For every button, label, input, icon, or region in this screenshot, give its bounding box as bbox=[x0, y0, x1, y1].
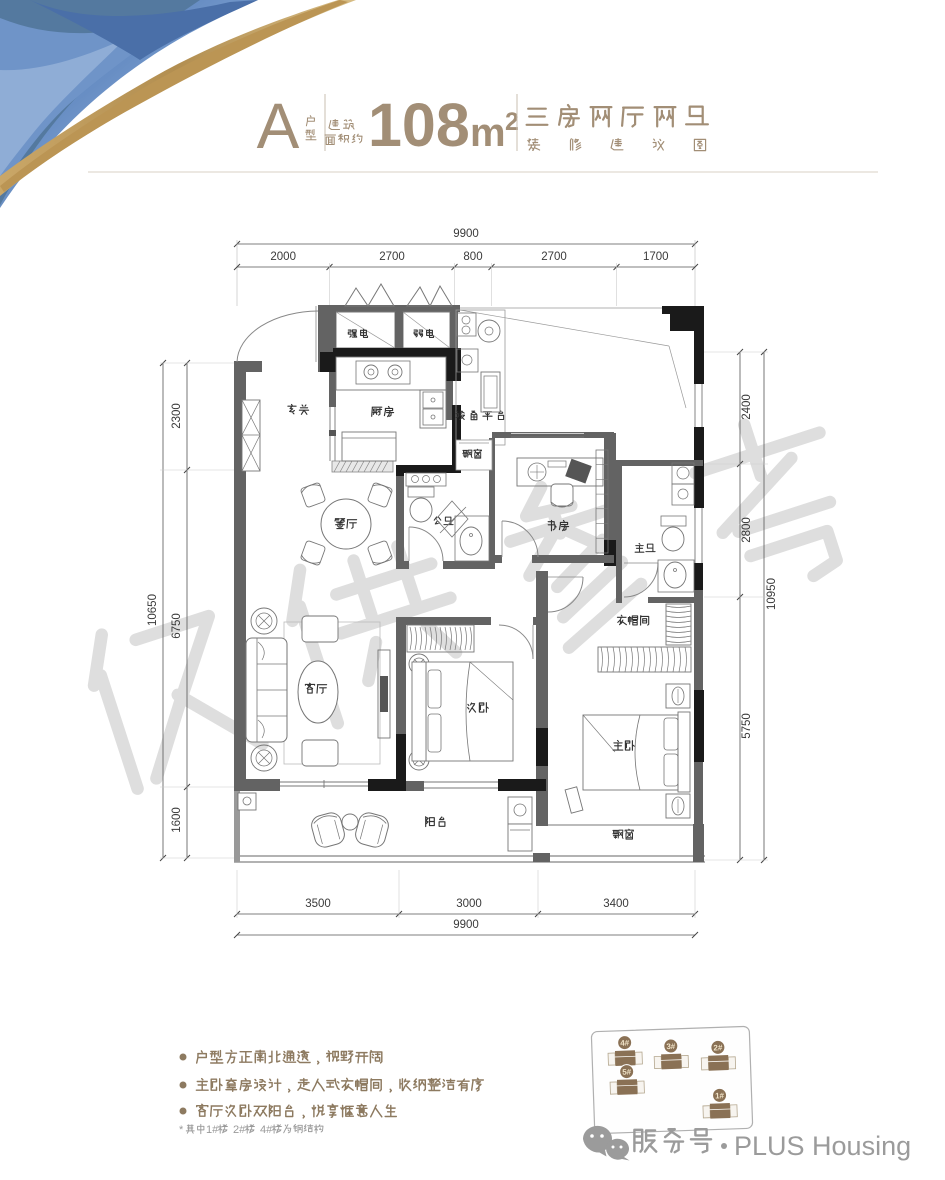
svg-text:1600: 1600 bbox=[171, 807, 183, 833]
svg-text:4#: 4# bbox=[620, 1038, 630, 1047]
svg-text:2700: 2700 bbox=[379, 251, 405, 263]
svg-text:1#: 1# bbox=[715, 1091, 725, 1100]
svg-text:4#: 4# bbox=[260, 1124, 273, 1136]
svg-text:3400: 3400 bbox=[603, 898, 629, 910]
svg-text:2700: 2700 bbox=[541, 251, 567, 263]
svg-text:1#: 1# bbox=[206, 1124, 219, 1136]
svg-text:A: A bbox=[257, 90, 300, 162]
svg-text:5750: 5750 bbox=[741, 713, 753, 739]
svg-text:9900: 9900 bbox=[453, 228, 479, 240]
svg-text:m: m bbox=[470, 111, 506, 155]
svg-text:PLUS Housing: PLUS Housing bbox=[734, 1131, 911, 1161]
svg-text:2300: 2300 bbox=[171, 403, 183, 429]
svg-text:10650: 10650 bbox=[147, 594, 159, 626]
svg-text:2800: 2800 bbox=[741, 517, 753, 543]
svg-text:10950: 10950 bbox=[766, 578, 778, 610]
svg-text:1700: 1700 bbox=[643, 251, 669, 263]
svg-text:800: 800 bbox=[463, 251, 482, 263]
svg-text:3000: 3000 bbox=[456, 898, 482, 910]
svg-text:108: 108 bbox=[368, 91, 470, 159]
svg-text:2000: 2000 bbox=[270, 251, 296, 263]
svg-text:*: * bbox=[179, 1124, 184, 1136]
svg-text:5#: 5# bbox=[622, 1067, 632, 1076]
svg-text:2#: 2# bbox=[713, 1043, 723, 1052]
svg-text:9900: 9900 bbox=[453, 919, 479, 931]
svg-text:2#: 2# bbox=[233, 1124, 246, 1136]
svg-text:6750: 6750 bbox=[171, 613, 183, 639]
svg-text:2400: 2400 bbox=[741, 394, 753, 420]
svg-text:3500: 3500 bbox=[305, 898, 331, 910]
svg-text:3#: 3# bbox=[666, 1042, 676, 1051]
